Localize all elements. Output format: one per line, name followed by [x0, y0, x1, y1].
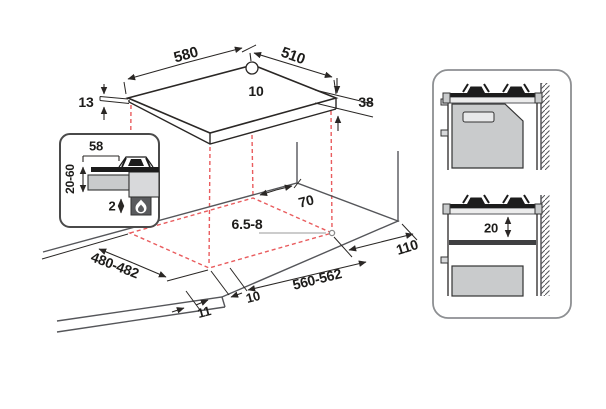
hob-body-section: [129, 172, 159, 197]
dim-side-offset: 10: [245, 289, 262, 305]
oven-handle: [463, 112, 494, 122]
dim-rear-clearance: 70: [297, 192, 315, 209]
dim-body-height: 38: [358, 95, 373, 109]
adjacent-cabinet: [88, 175, 129, 190]
wall-hatching: [542, 195, 550, 296]
dim-burner-offset: 58: [89, 140, 103, 153]
dim-bottom-gap: 2: [108, 200, 115, 213]
hole-position-icon: [246, 62, 258, 74]
drawer-body: [452, 266, 523, 296]
dim-under-counter: 20-60: [64, 164, 76, 194]
dim-shelf-clearance: 20: [484, 222, 498, 235]
dim-hole-offset: 10: [248, 84, 263, 98]
wall-hatching: [542, 83, 550, 170]
side-view-panel: [433, 70, 571, 318]
glass-edge-lip: [100, 97, 129, 104]
shelf: [449, 240, 536, 245]
hob-installation-diagram: 580 510 10 13 38 58 20-60 2 70 6.5-8 110…: [0, 0, 606, 409]
mounting-hole-icon: [329, 230, 334, 235]
dim-fixing-hole: 6.5-8: [232, 217, 263, 231]
dim-edge-thickness: 13: [78, 95, 93, 109]
hob-surface-section: [91, 167, 159, 172]
